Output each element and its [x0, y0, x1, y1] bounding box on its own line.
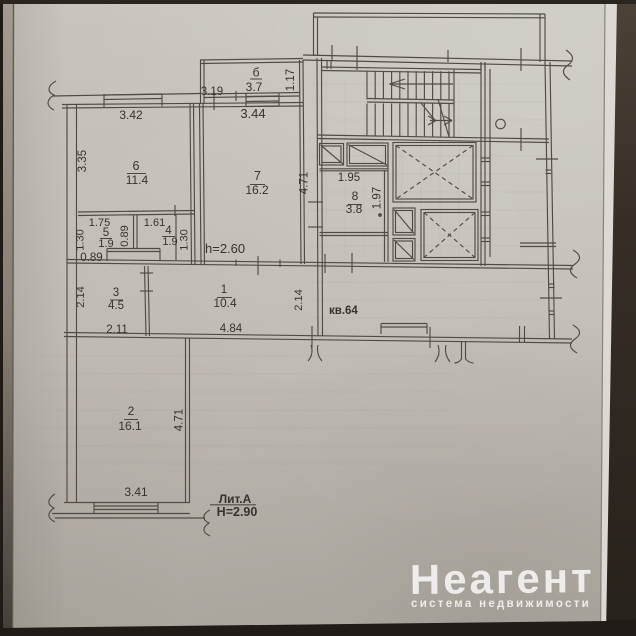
svg-text:16.1: 16.1 [118, 419, 142, 433]
svg-text:1.17: 1.17 [285, 69, 297, 91]
svg-text:11.4: 11.4 [126, 173, 149, 187]
svg-text:3.41: 3.41 [124, 485, 148, 499]
svg-text:1.30: 1.30 [75, 229, 87, 250]
svg-text:1.9: 1.9 [162, 236, 177, 248]
svg-text:3.19: 3.19 [201, 86, 223, 98]
svg-text:3.35: 3.35 [77, 150, 89, 172]
svg-text:4.5: 4.5 [108, 300, 124, 312]
svg-text:4.71: 4.71 [174, 409, 186, 431]
svg-text:Неагент: Неагент [410, 554, 595, 603]
svg-text:1.61: 1.61 [144, 217, 165, 229]
svg-text:2.14: 2.14 [293, 289, 305, 310]
svg-text:2.11: 2.11 [106, 324, 128, 336]
svg-text:1.30: 1.30 [179, 229, 191, 250]
svg-text:3.44: 3.44 [240, 106, 265, 121]
svg-text:3.42: 3.42 [119, 108, 143, 122]
svg-text:0.89: 0.89 [80, 252, 102, 264]
svg-text:6: 6 [133, 159, 140, 173]
svg-text:16.2: 16.2 [245, 183, 269, 197]
svg-text:б: б [253, 66, 260, 80]
svg-text:10.4: 10.4 [213, 296, 237, 310]
svg-text:h=2.60: h=2.60 [205, 241, 245, 256]
svg-text:система недвижимости: система недвижимости [411, 598, 591, 610]
svg-text:7: 7 [254, 169, 261, 183]
svg-text:Лит.А: Лит.А [219, 492, 252, 506]
svg-text:1: 1 [221, 284, 227, 296]
svg-text:3.8: 3.8 [346, 202, 363, 216]
svg-text:1.97: 1.97 [372, 187, 384, 209]
svg-text:3: 3 [113, 287, 119, 299]
svg-text:2: 2 [128, 404, 135, 418]
svg-text:4.71: 4.71 [299, 172, 311, 194]
svg-text:0.89: 0.89 [119, 225, 131, 246]
svg-text:1.95: 1.95 [338, 172, 360, 184]
svg-text:3.7: 3.7 [246, 80, 263, 94]
svg-text:4.84: 4.84 [220, 323, 243, 335]
svg-text:Н=2.90: Н=2.90 [217, 505, 258, 519]
svg-text:2.14: 2.14 [75, 286, 87, 307]
svg-text:8: 8 [352, 189, 359, 203]
svg-text:кв.64: кв.64 [329, 305, 358, 317]
svg-text:1.9: 1.9 [98, 238, 113, 250]
